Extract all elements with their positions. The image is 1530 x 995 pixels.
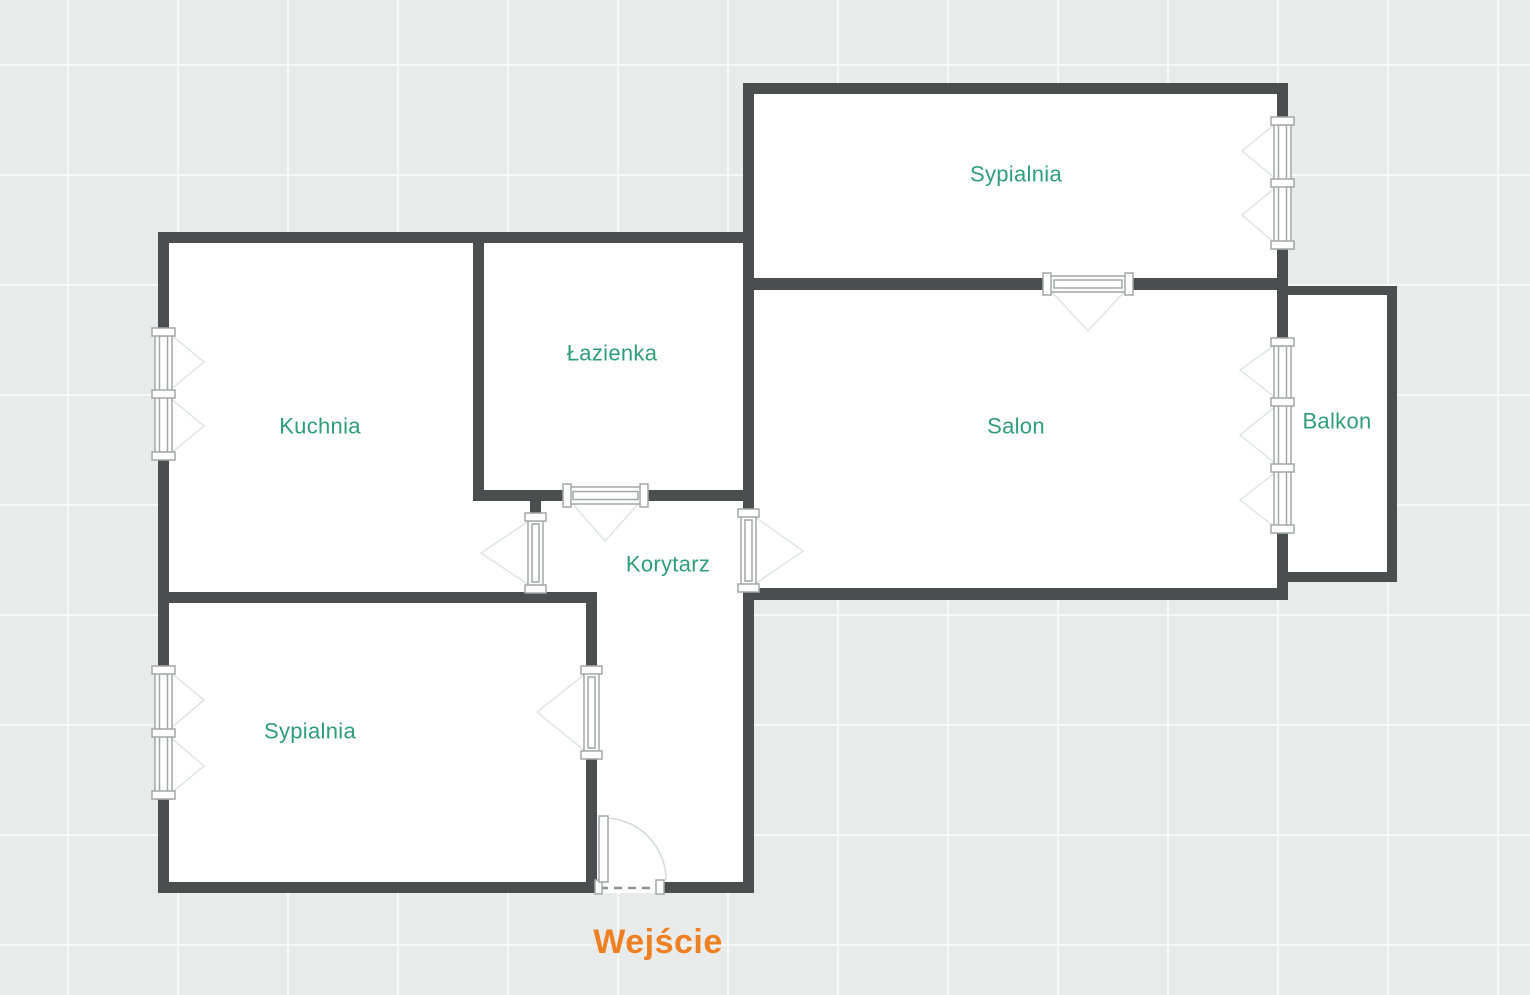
room-label-salon: Salon	[987, 414, 1045, 439]
door-leaf	[1054, 280, 1122, 288]
room-floor-sypialnia-top	[748, 88, 1283, 288]
room-floor-sypialnia-bottom	[163, 597, 591, 887]
door-leaf	[532, 524, 539, 582]
window-cap	[1271, 338, 1294, 346]
wall-segment	[743, 83, 754, 893]
window-cap	[152, 390, 175, 398]
door-leaf	[599, 816, 608, 882]
wall-segment	[158, 232, 754, 243]
door-jamb	[656, 880, 664, 894]
floor-plan-canvas: Sypialnia Łazienka Kuchnia Salon Balkon …	[0, 0, 1530, 995]
window-cap	[1271, 117, 1294, 125]
door-leaf	[573, 492, 638, 500]
door-leaf	[745, 520, 752, 581]
floor-plan-page: Sypialnia Łazienka Kuchnia Salon Balkon …	[0, 0, 1530, 995]
wall-segment	[743, 278, 1288, 290]
room-label-balkon: Balkon	[1302, 409, 1371, 434]
window-cap	[1271, 464, 1294, 472]
room-floor-balkon	[1283, 291, 1392, 577]
wall-segment	[1288, 286, 1396, 295]
room-label-korytarz: Korytarz	[626, 552, 710, 577]
window-cap	[1271, 241, 1294, 249]
door-jamb	[738, 584, 759, 592]
door-jamb	[738, 509, 759, 517]
window-cap	[152, 729, 175, 737]
door-leaf	[588, 677, 595, 748]
door-jamb	[640, 484, 648, 507]
window-cap	[152, 791, 175, 799]
room-label-sypialnia-bottom: Sypialnia	[264, 719, 356, 744]
door-jamb	[563, 484, 571, 507]
window-cap	[152, 328, 175, 336]
wall-segment	[743, 83, 1288, 94]
room-label-kuchnia: Kuchnia	[279, 414, 361, 439]
window-cap	[1271, 398, 1294, 406]
window-cap	[1271, 179, 1294, 187]
wall-segment	[473, 232, 484, 501]
window-glass	[1279, 346, 1287, 526]
door-jamb	[1125, 273, 1133, 295]
wall-segment	[1387, 286, 1397, 582]
wall-segment	[743, 588, 1288, 600]
window-cap	[152, 452, 175, 460]
room-label-sypialnia-top: Sypialnia	[970, 162, 1062, 187]
door-jamb	[525, 585, 546, 593]
door-jamb	[581, 666, 602, 674]
room-label-lazienka: Łazienka	[567, 341, 658, 366]
window-cap	[152, 666, 175, 674]
room-floor-salon	[748, 283, 1283, 598]
door-jamb	[1043, 273, 1051, 295]
window-cap	[1271, 525, 1294, 533]
wall-segment	[1288, 572, 1397, 582]
door-jamb	[581, 751, 602, 759]
entrance-label: Wejście	[593, 923, 723, 961]
door-jamb	[525, 513, 546, 521]
